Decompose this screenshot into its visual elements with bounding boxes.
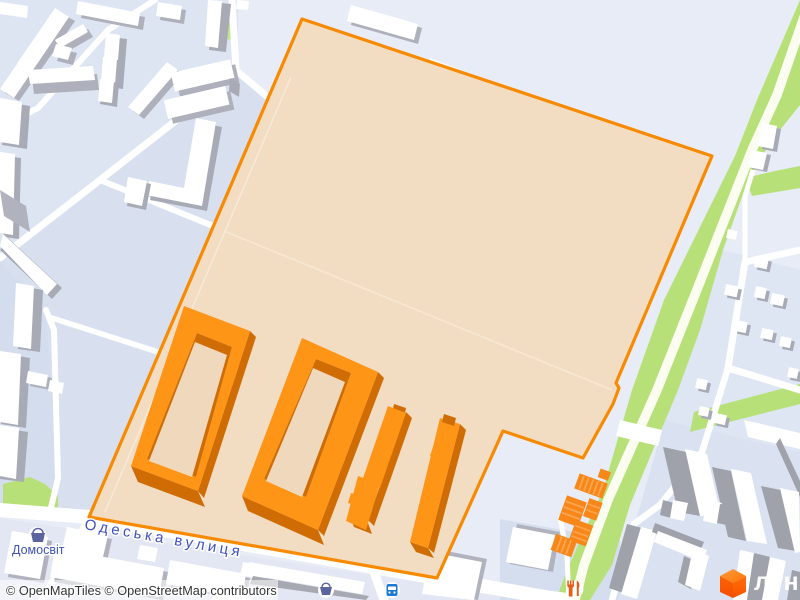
svg-text:лун: лун <box>754 568 799 596</box>
svg-text:© OpenMapTiles © OpenStreetMap: © OpenMapTiles © OpenStreetMap contribut… <box>6 584 277 598</box>
svg-text:Домосвіт: Домосвіт <box>12 543 65 557</box>
